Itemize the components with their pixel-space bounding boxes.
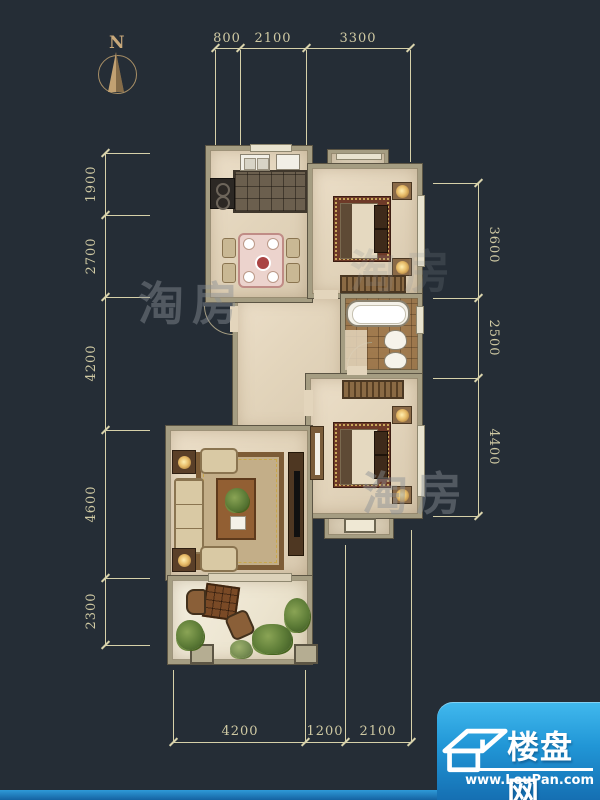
tv-icon (294, 471, 300, 537)
bedroom-bottom-door-opening (304, 390, 313, 416)
watermark-text: 淘房 (138, 268, 246, 334)
stove-icon (210, 178, 235, 209)
coffee-table-icon (216, 478, 256, 540)
dim-label: 2100 (359, 724, 396, 739)
dim-label: 4200 (221, 724, 258, 739)
dim-label: 4400 (486, 428, 501, 465)
dim-label: 800 (213, 31, 241, 46)
logo-title: 楼盘网 (507, 722, 600, 800)
bedroom-top-bay-glass (336, 153, 382, 160)
dining-chair (286, 263, 300, 283)
dining-chair (286, 238, 300, 258)
compass-north-label: N (109, 33, 126, 53)
bathtub-icon (346, 300, 410, 327)
plant-icon (252, 624, 292, 654)
watermark-text: 淘房 (362, 458, 470, 524)
side-table-icon (172, 548, 196, 572)
dim-label: 1900 (84, 165, 99, 202)
sink-icon (240, 154, 270, 171)
tv-cabinet-icon (288, 452, 304, 556)
dim-label: 2100 (254, 31, 291, 46)
dim-label: 3300 (339, 31, 376, 46)
house-logo-icon (442, 724, 508, 774)
toilet-icon (384, 330, 407, 350)
dim-label: 4600 (84, 485, 99, 522)
nightstand-icon (392, 182, 412, 200)
kitchen-window (250, 144, 292, 152)
bedroom-top-door-opening (314, 290, 338, 299)
dim-label: 3600 (486, 226, 501, 263)
bathroom-window (416, 306, 424, 334)
floorplan-image: N 800 2100 3300 1900 2700 4200 (0, 0, 600, 800)
logo-underline (449, 768, 593, 771)
plant-icon (230, 640, 252, 658)
armchair-icon (200, 546, 238, 572)
sofa-icon (174, 478, 204, 554)
wardrobe-icon (342, 380, 404, 399)
washbasin-icon (384, 352, 407, 369)
kitchen-appliance (276, 154, 300, 170)
balcony-pillar (294, 644, 318, 664)
dim-label: 2300 (84, 592, 99, 629)
dim-label: 2500 (486, 319, 501, 356)
nightstand-icon (392, 406, 412, 424)
dim-label: 2700 (84, 237, 99, 274)
plant-icon (284, 598, 310, 632)
watermark-text: 淘房 (350, 236, 458, 302)
logo-url: www.LouPan.com (465, 773, 594, 788)
balcony-sliding-door (208, 573, 292, 582)
plant-icon (176, 620, 204, 650)
dining-chair (222, 238, 236, 258)
compass-needle-shadow (116, 52, 124, 92)
dresser-icon (310, 426, 324, 480)
side-table-icon (172, 450, 196, 474)
kitchen-counter (233, 170, 307, 213)
bathroom-entry-floor (345, 330, 367, 370)
armchair-icon (200, 448, 238, 474)
site-logo: 楼盘网 www.LouPan.com (437, 702, 600, 800)
dim-label: 4200 (84, 344, 99, 381)
balcony-chair-icon (186, 589, 206, 615)
dim-label: 1200 (306, 724, 343, 739)
